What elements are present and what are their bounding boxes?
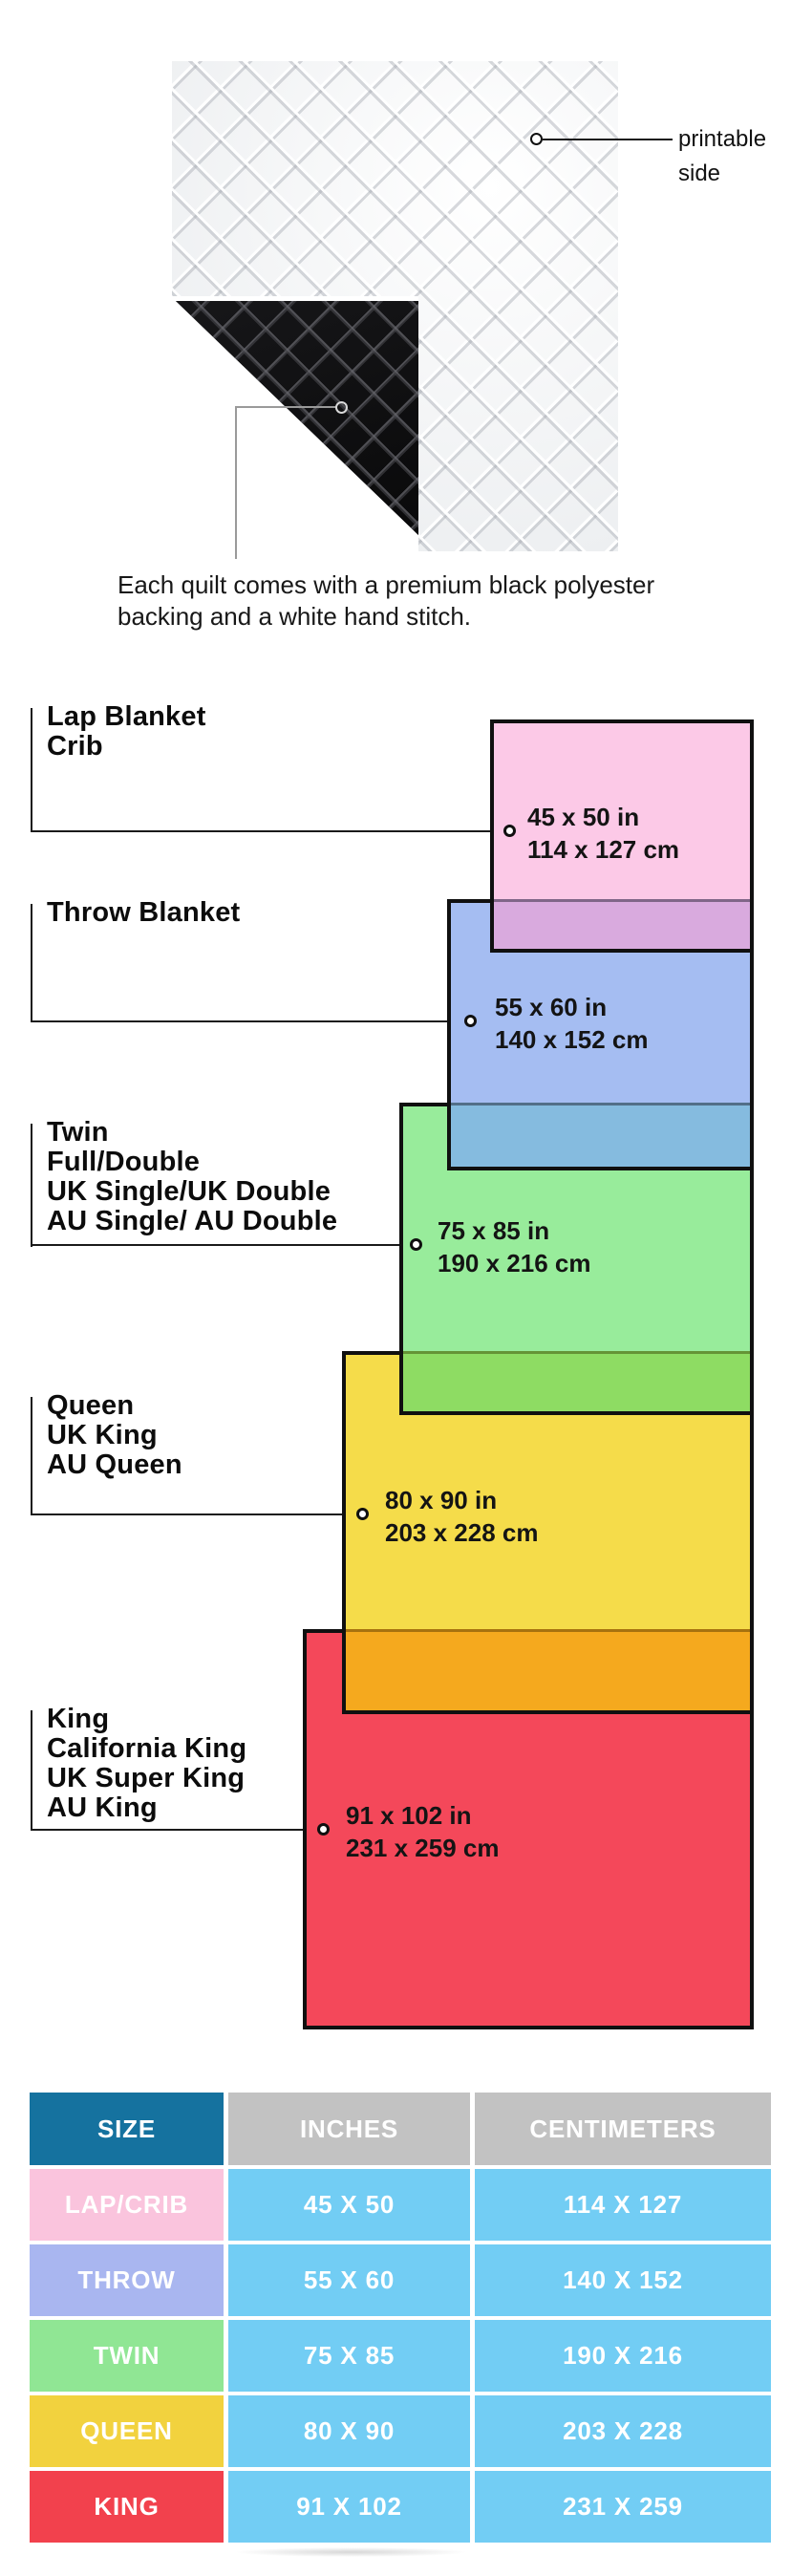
table-cell-cm: 231 X 259 — [475, 2471, 771, 2543]
size-dims-twin: 75 x 85 in 190 x 216 cm — [438, 1214, 590, 1279]
backing-leader-line-vertical — [235, 407, 237, 559]
hero-caption-line: Each quilt comes with a premium black po… — [118, 569, 654, 601]
size-label-line: King — [47, 1705, 246, 1734]
marker-dot-throw — [464, 1015, 477, 1027]
table-cell-cm: 203 X 228 — [475, 2395, 771, 2467]
overlap-lap-over-throw — [494, 899, 750, 949]
backing-leader-line-horizontal — [235, 406, 336, 408]
leader-horizontal-lap — [31, 830, 505, 832]
size-dims-inches: 91 x 102 in — [346, 1799, 499, 1832]
size-dims-lap-crib: 45 x 50 in 114 x 127 cm — [527, 801, 679, 866]
table-row-label-throw: THROW — [30, 2244, 224, 2316]
leader-vertical-king — [31, 1710, 32, 1831]
overlap-queen-over-king — [346, 1629, 750, 1710]
size-label-line: UK Super King — [47, 1764, 246, 1793]
size-dims-king: 91 x 102 in 231 x 259 cm — [346, 1799, 499, 1864]
size-label-line: Queen — [47, 1391, 182, 1421]
table-row-label-twin: TWIN — [30, 2320, 224, 2392]
leader-horizontal-queen — [31, 1513, 358, 1515]
size-label-king: King California King UK Super King AU Ki… — [47, 1705, 246, 1823]
size-label-line: Lap Blanket — [47, 702, 206, 732]
size-label-twin: Twin Full/Double UK Single/UK Double AU … — [47, 1118, 337, 1236]
marker-dot-twin — [410, 1238, 422, 1251]
leader-vertical-throw — [31, 904, 32, 1022]
leader-horizontal-twin — [31, 1244, 412, 1246]
hero-caption-line: backing and a white hand stitch. — [118, 601, 654, 633]
size-dims-cm: 140 x 152 cm — [495, 1023, 648, 1056]
hero-caption: Each quilt comes with a premium black po… — [118, 569, 654, 633]
overlap-twin-over-queen — [403, 1351, 750, 1411]
table-cell-inches: 45 X 50 — [228, 2169, 470, 2241]
size-label-line: AU Single/ AU Double — [47, 1207, 337, 1236]
size-label-line: Full/Double — [47, 1148, 337, 1177]
table-header-centimeters: CENTIMETERS — [475, 2093, 771, 2165]
size-label-line: UK Single/UK Double — [47, 1177, 337, 1207]
printable-side-marker-dot — [530, 133, 543, 145]
size-label-line: Twin — [47, 1118, 337, 1148]
size-label-line: AU Queen — [47, 1450, 182, 1480]
size-label-lap-crib: Lap Blanket Crib — [47, 702, 206, 762]
table-row-label-lap-crib: LAP/CRIB — [30, 2169, 224, 2241]
printable-side-label: printable side — [678, 122, 766, 191]
size-label-line: AU King — [47, 1793, 246, 1823]
printable-side-label-line: printable — [678, 122, 766, 157]
size-dims-throw: 55 x 60 in 140 x 152 cm — [495, 991, 648, 1056]
size-dims-cm: 190 x 216 cm — [438, 1247, 590, 1279]
size-label-queen: Queen UK King AU Queen — [47, 1391, 182, 1480]
size-label-line: UK King — [47, 1421, 182, 1450]
size-dims-inches: 75 x 85 in — [438, 1214, 590, 1247]
size-dims-cm: 114 x 127 cm — [527, 833, 679, 866]
size-dims-inches: 55 x 60 in — [495, 991, 648, 1023]
leader-horizontal-throw — [31, 1020, 466, 1022]
quilt-size-chart-infographic: printable side Each quilt comes with a p… — [0, 0, 791, 2576]
table-shadow — [234, 2547, 468, 2557]
size-label-line: Crib — [47, 732, 206, 762]
size-dims-cm: 203 x 228 cm — [385, 1516, 538, 1549]
table-header-inches: INCHES — [228, 2093, 470, 2165]
leader-horizontal-king — [31, 1829, 319, 1831]
printable-side-label-line: side — [678, 157, 766, 191]
table-cell-cm: 190 X 216 — [475, 2320, 771, 2392]
leader-vertical-queen — [31, 1397, 32, 1515]
size-table: SIZE INCHES CENTIMETERS LAP/CRIB 45 X 50… — [30, 2093, 771, 2543]
table-cell-inches: 80 X 90 — [228, 2395, 470, 2467]
size-label-throw: Throw Blanket — [47, 898, 240, 928]
overlap-throw-over-twin — [451, 1103, 750, 1167]
table-cell-inches: 55 X 60 — [228, 2244, 470, 2316]
table-cell-cm: 140 X 152 — [475, 2244, 771, 2316]
table-header-size: SIZE — [30, 2093, 224, 2165]
backing-marker-dot — [335, 401, 348, 414]
table-cell-cm: 114 X 127 — [475, 2169, 771, 2241]
table-cell-inches: 75 X 85 — [228, 2320, 470, 2392]
marker-dot-queen — [356, 1508, 369, 1520]
table-row-label-king: KING — [30, 2471, 224, 2543]
table-row-label-queen: QUEEN — [30, 2395, 224, 2467]
size-label-line: California King — [47, 1734, 246, 1764]
size-dims-cm: 231 x 259 cm — [346, 1832, 499, 1864]
size-dims-inches: 80 x 90 in — [385, 1484, 538, 1516]
leader-vertical-lap — [31, 708, 32, 832]
size-label-line: Throw Blanket — [47, 898, 240, 928]
leader-vertical-twin — [31, 1124, 32, 1247]
marker-dot-king — [317, 1823, 330, 1835]
table-cell-inches: 91 X 102 — [228, 2471, 470, 2543]
size-dims-inches: 45 x 50 in — [527, 801, 679, 833]
printable-side-leader-line — [543, 139, 673, 140]
size-dims-queen: 80 x 90 in 203 x 228 cm — [385, 1484, 538, 1549]
marker-dot-lap — [503, 825, 516, 837]
